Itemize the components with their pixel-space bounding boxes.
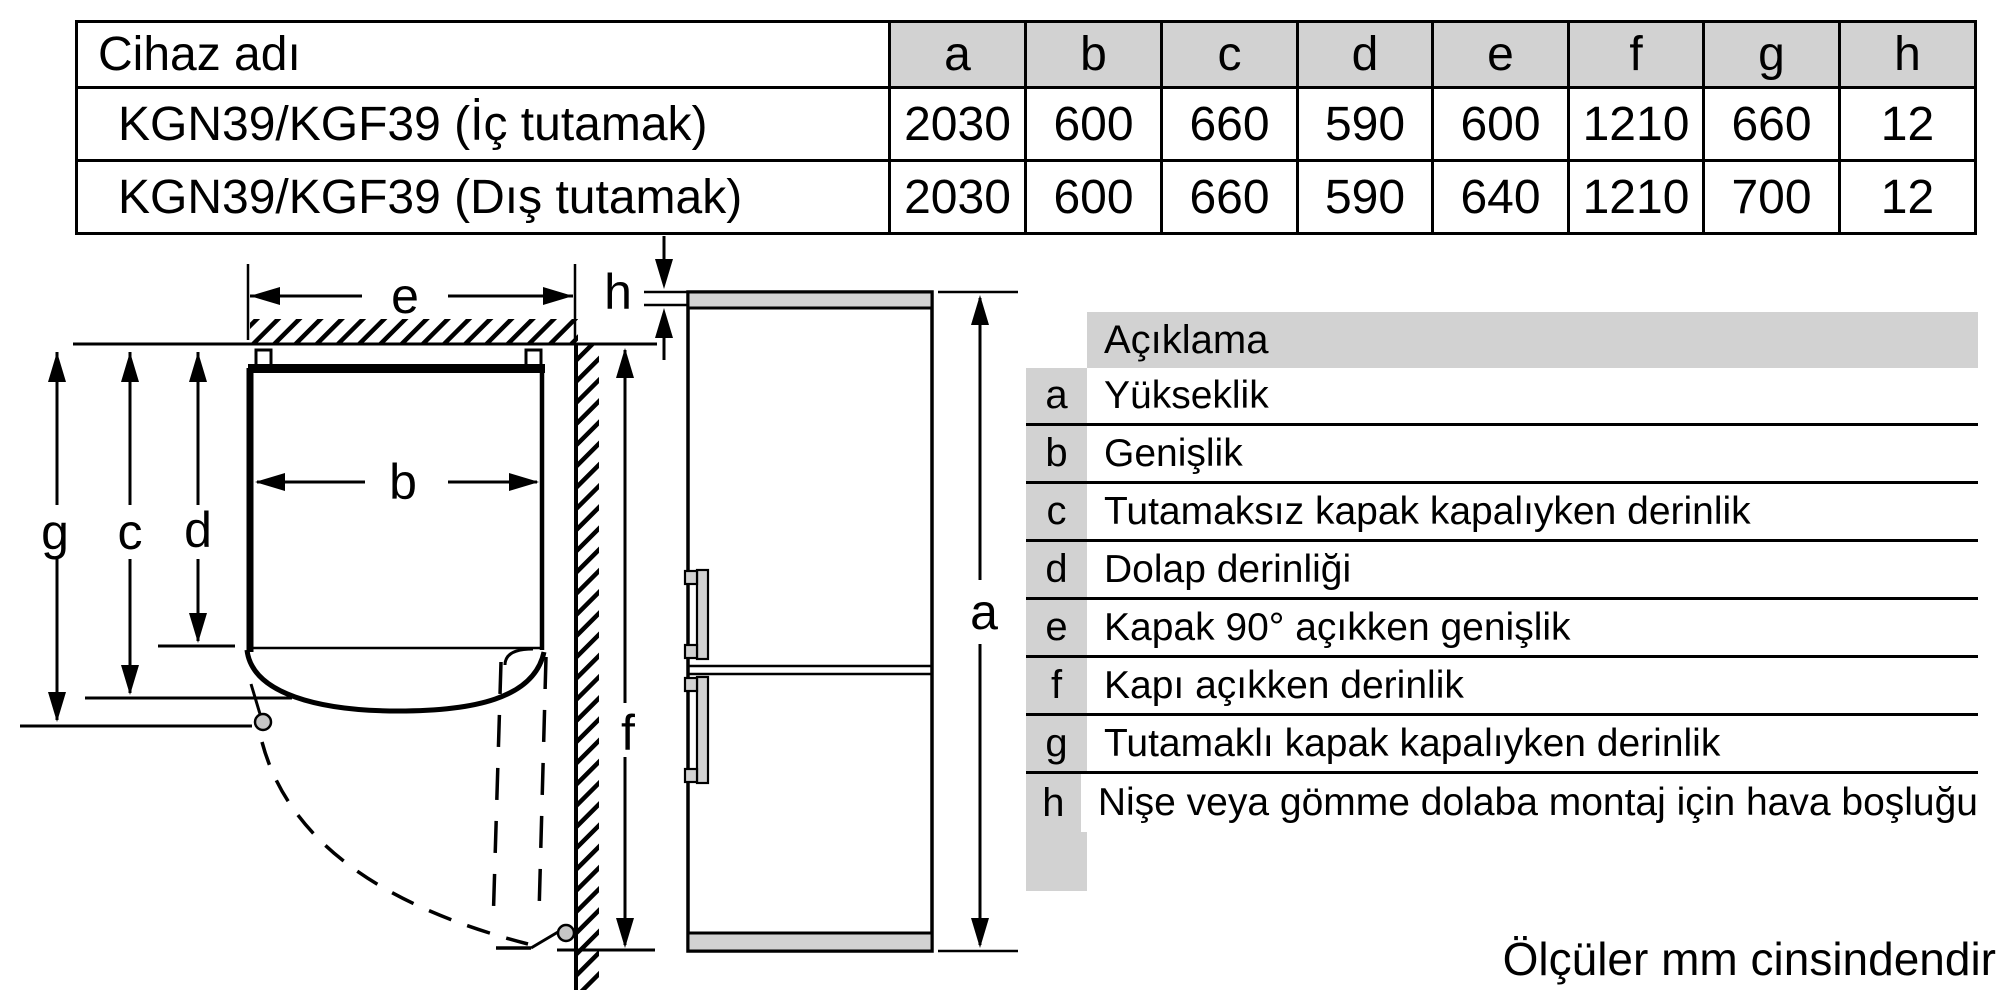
wall-hinge-pivot — [558, 925, 574, 941]
units-note: Ölçüler mm cinsindendir — [1440, 934, 1996, 985]
legend-row: e Kapak 90° açıkken genişlik — [1026, 600, 1978, 658]
dimension-f: f — [557, 348, 655, 950]
legend-table: Açıklama a Yükseklik b Genişlik c Tutama… — [1026, 312, 1978, 891]
legend-key-column-tail — [1026, 832, 1087, 891]
dimension-h: h — [604, 236, 690, 360]
legend-title: Açıklama — [1087, 312, 1978, 368]
legend-key: a — [1026, 368, 1087, 423]
label-h: h — [604, 264, 632, 320]
top-air-gap-strip — [688, 292, 932, 308]
legend-row: b Genişlik — [1026, 426, 1978, 484]
legend-key: c — [1026, 484, 1087, 539]
legend-description: Tutamaksız kapak kapalıyken derinlik — [1087, 484, 1978, 539]
dimension-a: a — [938, 292, 1018, 951]
label-c: c — [118, 504, 143, 560]
label-e: e — [391, 268, 419, 324]
dimension-d: d — [158, 352, 235, 646]
label-d: d — [184, 502, 212, 558]
legend-description: Dolap derinliği — [1087, 542, 1978, 597]
legend-description: Kapı açıkken derinlik — [1087, 658, 1978, 713]
label-b: b — [389, 454, 417, 510]
legend-description: Genişlik — [1087, 426, 1978, 481]
legend-corner — [1026, 312, 1087, 368]
label-g: g — [41, 504, 69, 560]
appliance-front-view — [685, 292, 932, 951]
legend-description: Nişe veya gömme dolaba montaj için hava … — [1081, 774, 1978, 832]
legend-description: Kapak 90° açıkken genişlik — [1087, 600, 1978, 655]
dimension-b: b — [255, 454, 539, 510]
spec-sheet-page: Cihaz adı a b c d e f g h KGN39/KGF39 (İ… — [0, 0, 2000, 1000]
legend-key: e — [1026, 600, 1087, 655]
door-hinge-pivot — [255, 714, 271, 730]
legend-row: a Yükseklik — [1026, 368, 1978, 426]
legend-row: g Tutamaklı kapak kapalıyken derinlik — [1026, 716, 1978, 774]
plinth — [688, 933, 932, 951]
legend-description: Tutamaklı kapak kapalıyken derinlik — [1087, 716, 1978, 771]
label-f: f — [621, 705, 635, 761]
legend-header-row: Açıklama — [1026, 312, 1978, 368]
legend-row: d Dolap derinliği — [1026, 542, 1978, 600]
legend-row: f Kapı açıkken derinlik — [1026, 658, 1978, 716]
legend-key: h — [1026, 774, 1081, 832]
legend-key: d — [1026, 542, 1087, 597]
legend-description: Yükseklik — [1087, 368, 1978, 423]
legend-key: f — [1026, 658, 1087, 713]
niche-walls — [73, 319, 657, 990]
legend-key: b — [1026, 426, 1087, 481]
legend-row: c Tutamaksız kapak kapalıyken derinlik — [1026, 484, 1978, 542]
legend-row: h Nişe veya gömme dolaba montaj için hav… — [1026, 774, 1978, 832]
legend-key: g — [1026, 716, 1087, 771]
label-a: a — [970, 584, 998, 640]
